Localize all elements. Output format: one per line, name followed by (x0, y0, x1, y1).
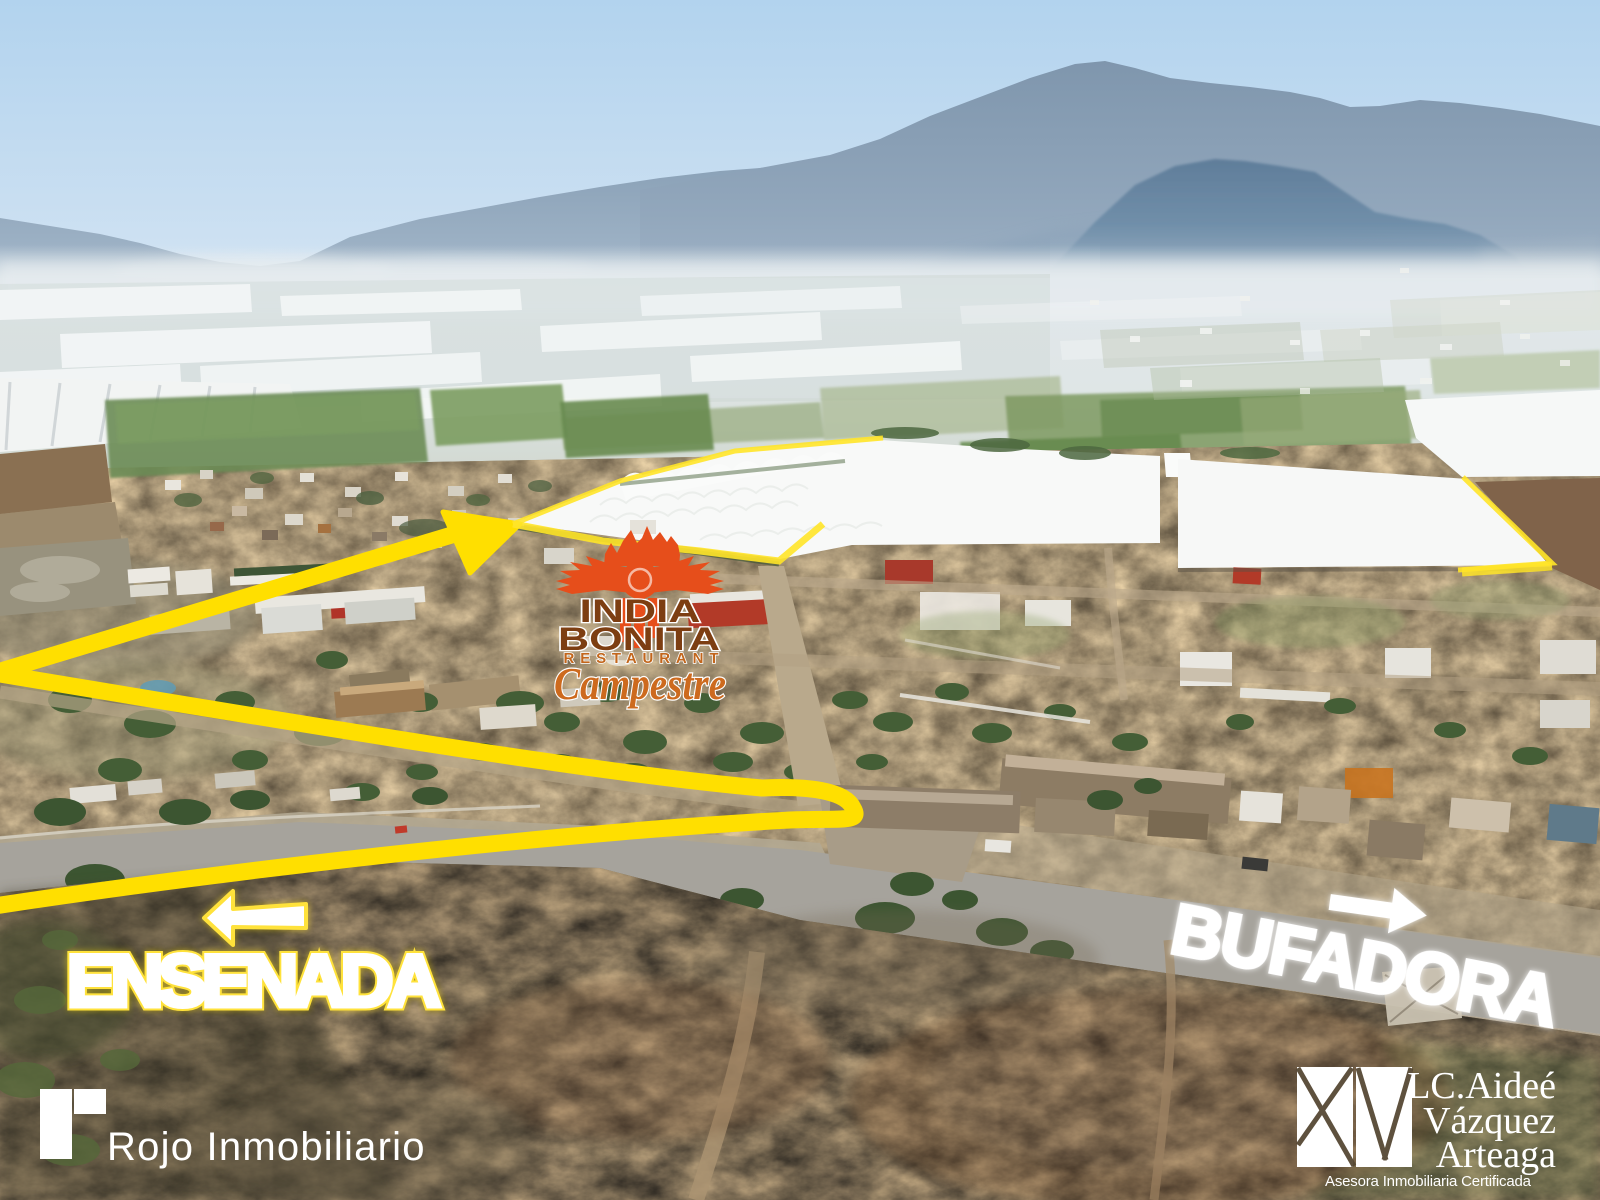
svg-text:ENSENADA: ENSENADA (67, 941, 441, 1022)
svg-text:Rojo Inmobiliario: Rojo Inmobiliario (107, 1125, 425, 1169)
svg-text:Arteaga: Arteaga (1436, 1134, 1556, 1176)
svg-text:Asesora Inmobiliaria Certifica: Asesora Inmobiliaria Certificada (1325, 1173, 1532, 1190)
svg-text:Campestre: Campestre (554, 658, 726, 709)
